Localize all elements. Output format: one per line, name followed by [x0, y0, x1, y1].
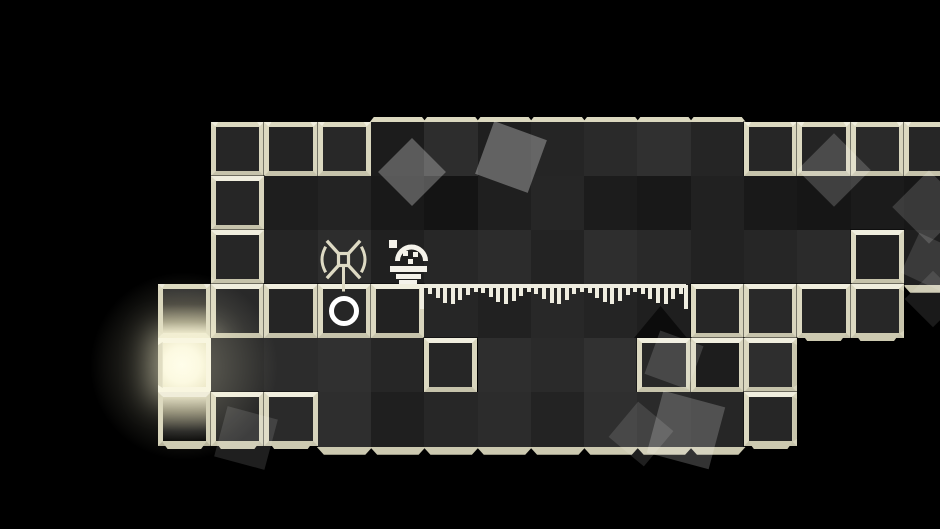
- waveform-bar: [580, 288, 584, 292]
- waveform-bar: [458, 288, 462, 300]
- waveform-bar: [489, 288, 493, 297]
- waveform-bar: [641, 288, 645, 294]
- waveform-bar: [436, 288, 440, 298]
- waveform-bar: [618, 288, 622, 301]
- waveform-end-cap: [684, 285, 688, 309]
- waveform-bar: [679, 288, 683, 294]
- waveform-bar: [595, 288, 599, 298]
- waveform-bar: [656, 288, 660, 303]
- waveform-bar: [664, 288, 668, 304]
- waveform-bar: [550, 288, 554, 303]
- game-viewport[interactable]: [0, 0, 940, 529]
- antenna-flower-icon: [312, 233, 372, 293]
- waveform-bar: [626, 288, 630, 295]
- waveform-bar: [671, 288, 675, 299]
- waveform-bar: [648, 288, 652, 299]
- robot-lamp-icon: [385, 237, 435, 292]
- waveform-bar: [534, 288, 538, 294]
- waveform-bar: [633, 288, 637, 292]
- decor-square: [214, 406, 278, 470]
- waveform-bar: [588, 288, 592, 293]
- waveform-bar: [527, 288, 531, 292]
- waveform-bar: [481, 288, 485, 293]
- waveform-bar: [504, 288, 508, 304]
- waveform-bar: [565, 288, 569, 300]
- waveform-bar: [603, 288, 607, 302]
- decor-square: [892, 170, 940, 244]
- waveform-bar: [496, 288, 500, 302]
- waveform-bar: [466, 288, 470, 295]
- waveform-bar: [542, 288, 546, 299]
- waveform-bar: [474, 288, 478, 292]
- waveform-bar: [519, 288, 523, 296]
- decor-layer: [0, 0, 940, 529]
- decor-square: [378, 138, 446, 206]
- waveform-bar: [610, 288, 614, 304]
- waveform: [420, 282, 688, 312]
- waveform-bar: [557, 288, 561, 304]
- decor-square: [797, 133, 871, 207]
- waveform-bar: [443, 288, 447, 303]
- waveform-bar: [572, 288, 576, 294]
- waveform-bar: [512, 288, 516, 301]
- decor-square: [475, 121, 547, 193]
- decor-square: [645, 331, 704, 390]
- waveform-bar: [451, 288, 455, 304]
